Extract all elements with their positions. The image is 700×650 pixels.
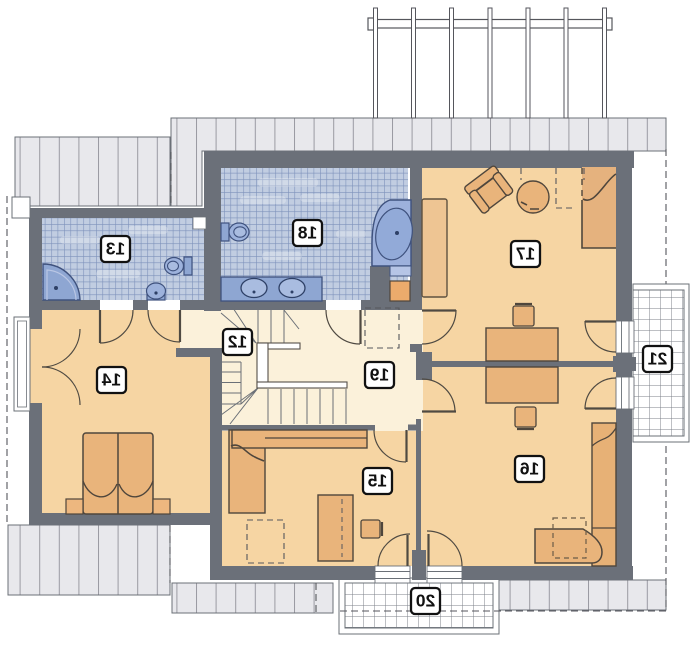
svg-text:17: 17 — [516, 244, 535, 264]
svg-text:21: 21 — [648, 349, 668, 369]
svg-text:19: 19 — [370, 365, 390, 385]
svg-text:20: 20 — [416, 591, 436, 611]
svg-text:12: 12 — [228, 332, 248, 352]
svg-text:18: 18 — [298, 223, 318, 243]
svg-text:16: 16 — [520, 459, 540, 479]
svg-text:15: 15 — [368, 471, 388, 491]
svg-text:14: 14 — [102, 370, 122, 390]
svg-text:13: 13 — [106, 239, 126, 259]
